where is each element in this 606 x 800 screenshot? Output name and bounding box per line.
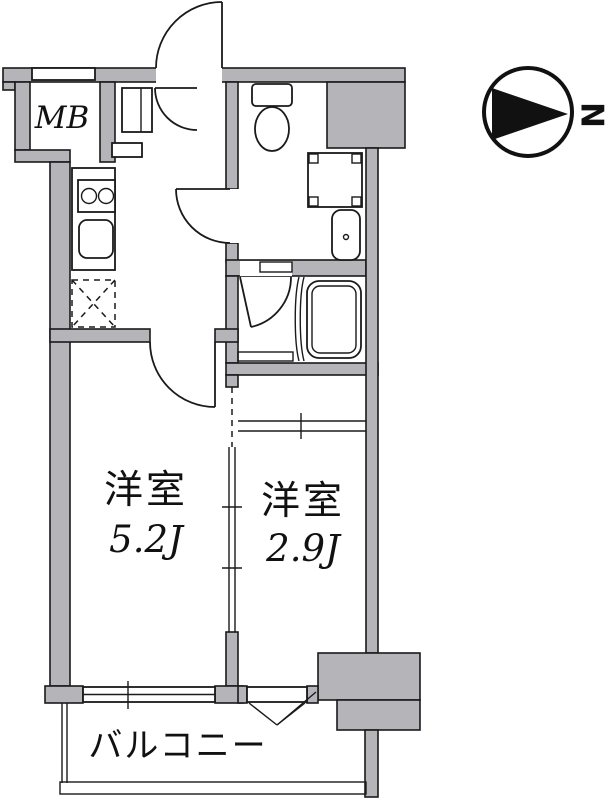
floor-plan: N MB 洋室 5.2J 洋室 2.9J バルコニー — [0, 0, 606, 800]
wall-corridor-lower — [226, 243, 238, 262]
room1-size-label: 5.2J — [109, 518, 185, 561]
wall-pillar-block-upper — [318, 653, 420, 700]
wall-bath-left — [226, 276, 238, 363]
wall-pillar-block-lower — [337, 700, 420, 730]
kitchen-stove — [78, 180, 115, 212]
washroom-door — [176, 189, 230, 243]
entrance-opening — [156, 66, 222, 83]
sliding-partition — [222, 387, 242, 632]
meter-box-label: MB — [34, 100, 90, 136]
wall-mb-bottom — [15, 150, 70, 162]
bathtub — [238, 277, 361, 361]
wall-right-outer — [366, 148, 378, 653]
bathroom-doorway — [240, 261, 292, 276]
washroom-doorway — [224, 189, 240, 243]
refrigerator-space — [72, 280, 115, 327]
shoe-cabinet — [112, 88, 152, 157]
wall-partition-bottom-stub — [226, 632, 238, 686]
toilet — [252, 84, 292, 151]
sliding-window-room1-balcony — [83, 681, 215, 709]
wall-left-tip — [3, 82, 15, 90]
wall-partition-top-stub — [226, 375, 238, 387]
wall-bottom-right-strip — [365, 730, 378, 797]
compass-north-label: N — [574, 102, 606, 128]
wall-room1-top-right — [215, 329, 238, 342]
wall-bath-bottom — [226, 363, 378, 375]
sliding-window-room2-top — [238, 413, 366, 439]
room2-size-label: 2.9J — [265, 527, 342, 570]
washing-machine-pan — [308, 153, 362, 207]
room2-name-label: 洋室 — [261, 479, 345, 524]
wall-mb-left — [15, 82, 30, 150]
wall-left-foot — [45, 686, 83, 703]
wall-room2-window-left-stub — [238, 686, 247, 703]
balcony-label: バルコニー — [88, 726, 267, 766]
wall-room1-top-left — [50, 329, 150, 342]
hall-door — [155, 88, 197, 130]
compass-north-arrow: N — [484, 68, 606, 156]
meter-box-hatch — [32, 68, 95, 80]
window-room2-balcony — [247, 687, 316, 725]
room1-name-label: 洋室 — [104, 468, 188, 513]
wall-corridor-upper — [226, 82, 238, 189]
floor-plan-drawing: N MB 洋室 5.2J 洋室 2.9J バルコニー — [0, 0, 606, 800]
kitchen-sink — [79, 220, 113, 258]
wall-top-right-block — [327, 82, 405, 148]
wall-left-outer — [50, 162, 70, 686]
entrance-door — [156, 2, 222, 68]
washbasin — [332, 210, 360, 260]
room-door — [150, 342, 215, 407]
bathroom-door — [240, 277, 291, 327]
